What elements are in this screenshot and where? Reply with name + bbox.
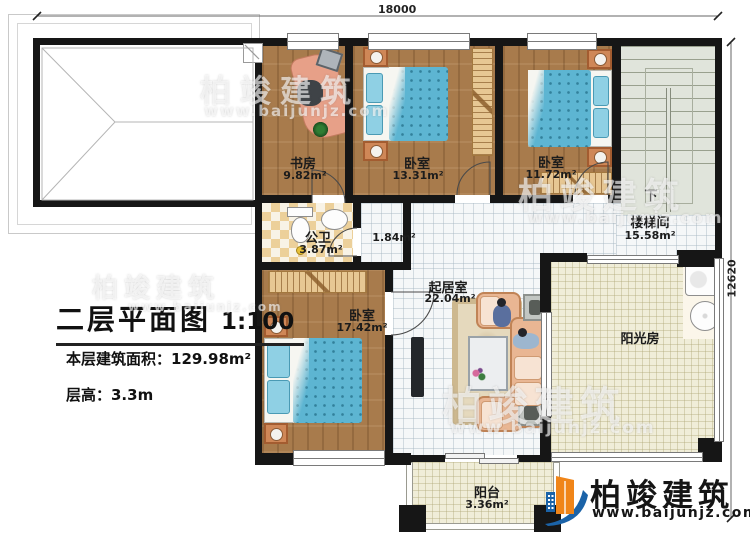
bedroom2-nightstand-bottom [587,147,612,167]
blanket-fold [293,338,309,423]
bathroom-area: 3.87m² [299,243,342,256]
wall [255,453,293,465]
window [287,33,339,50]
cushion [514,356,542,380]
bedroom1-wardrobe [472,48,493,156]
wall [612,38,621,195]
bedroom3-area: 17.42m² [336,321,387,334]
wall [495,46,503,195]
roof-corner-notch [243,43,263,63]
cushion [514,382,542,406]
wall [385,270,393,292]
stair-center-rail [666,88,671,212]
wall [608,195,621,203]
window [527,33,597,50]
person-2-head [518,328,527,337]
wall [255,262,411,270]
window [368,33,470,50]
desk-chair [297,80,323,106]
bedroom1-nightstand-top [363,47,388,67]
dimension-depth: 12620 [726,259,739,297]
sliding-door-leaf [479,458,519,464]
wall [383,455,445,462]
hallway-area: 1.84m² [372,231,415,244]
sunroom-glass-right [714,258,724,442]
bedroom2-pillow-1 [593,76,609,106]
study-area: 9.82m² [283,169,326,182]
roof-frame [33,38,262,207]
table-flowers [470,366,487,384]
bedroom3-pillow-1 [267,344,290,378]
person-1-head [497,298,506,307]
toilet-tank [287,207,313,217]
logo-icon [542,468,588,526]
sunroom-label: 阳光房 [620,328,659,347]
bedroom3-nightstand-bottom [264,423,288,444]
bedroom2-pillow-2 [593,108,609,138]
person-sitting-1 [493,305,511,327]
balcony-post-left [399,505,426,532]
sunroom-glass-bottom [551,452,703,462]
wall [540,415,551,462]
wall [540,255,551,312]
sunroom-glass-left [541,312,552,417]
wall [353,203,361,228]
bedroom3-pillow-2 [267,380,290,414]
stairwell-area: 15.58m² [624,229,675,242]
plan-title: 二层平面图 [56,303,211,336]
floor-area-line: 本层建筑面积：129.98m² [66,348,251,369]
plan-scale: 1:100 [221,309,294,335]
wall [490,195,573,203]
window [293,450,385,466]
balcony-area: 3.36m² [465,498,508,511]
bedroom2-nightstand-top [587,49,612,69]
floor-height-line: 层高：3.3m [66,384,153,405]
wall [715,38,722,255]
wall [255,38,262,465]
plan-title-row: 二层平面图1:100 [56,298,304,346]
watermark-logo-icon [56,258,88,302]
wall [345,38,353,203]
blanket-fold [528,70,544,147]
wall [255,195,312,203]
bedroom1-mattress [389,67,448,141]
blanket-fold [389,67,405,141]
tv [411,337,424,397]
wall [468,38,527,46]
bedroom3-wardrobe [268,271,367,293]
bedroom1-nightstand-bottom [363,141,388,161]
bedroom2-area: 11.72m² [525,168,576,181]
dimension-width: 18000 [378,3,416,16]
bedroom1-pillow-1 [366,73,383,103]
bedroom2-mattress [528,70,591,147]
company-website: www.baijunjz.com [592,505,750,521]
bedroom1-pillow-2 [366,105,383,135]
living-room-area: 22.04m² [424,292,475,305]
stair-direction-label: 下 [644,185,657,204]
bedroom3-mattress [293,338,362,423]
wall [385,335,393,455]
floor-plan-canvas: 书房 9.82m² 卧室 13.31m² 卧室 11.72m² 卧室 17.42… [0,0,750,541]
plant [313,122,328,137]
sunroom-glass-top [587,255,679,264]
cushion [481,401,503,429]
wall [345,195,455,203]
bedroom1-area: 13.31m² [392,169,443,182]
person-sitting-2 [513,333,539,349]
